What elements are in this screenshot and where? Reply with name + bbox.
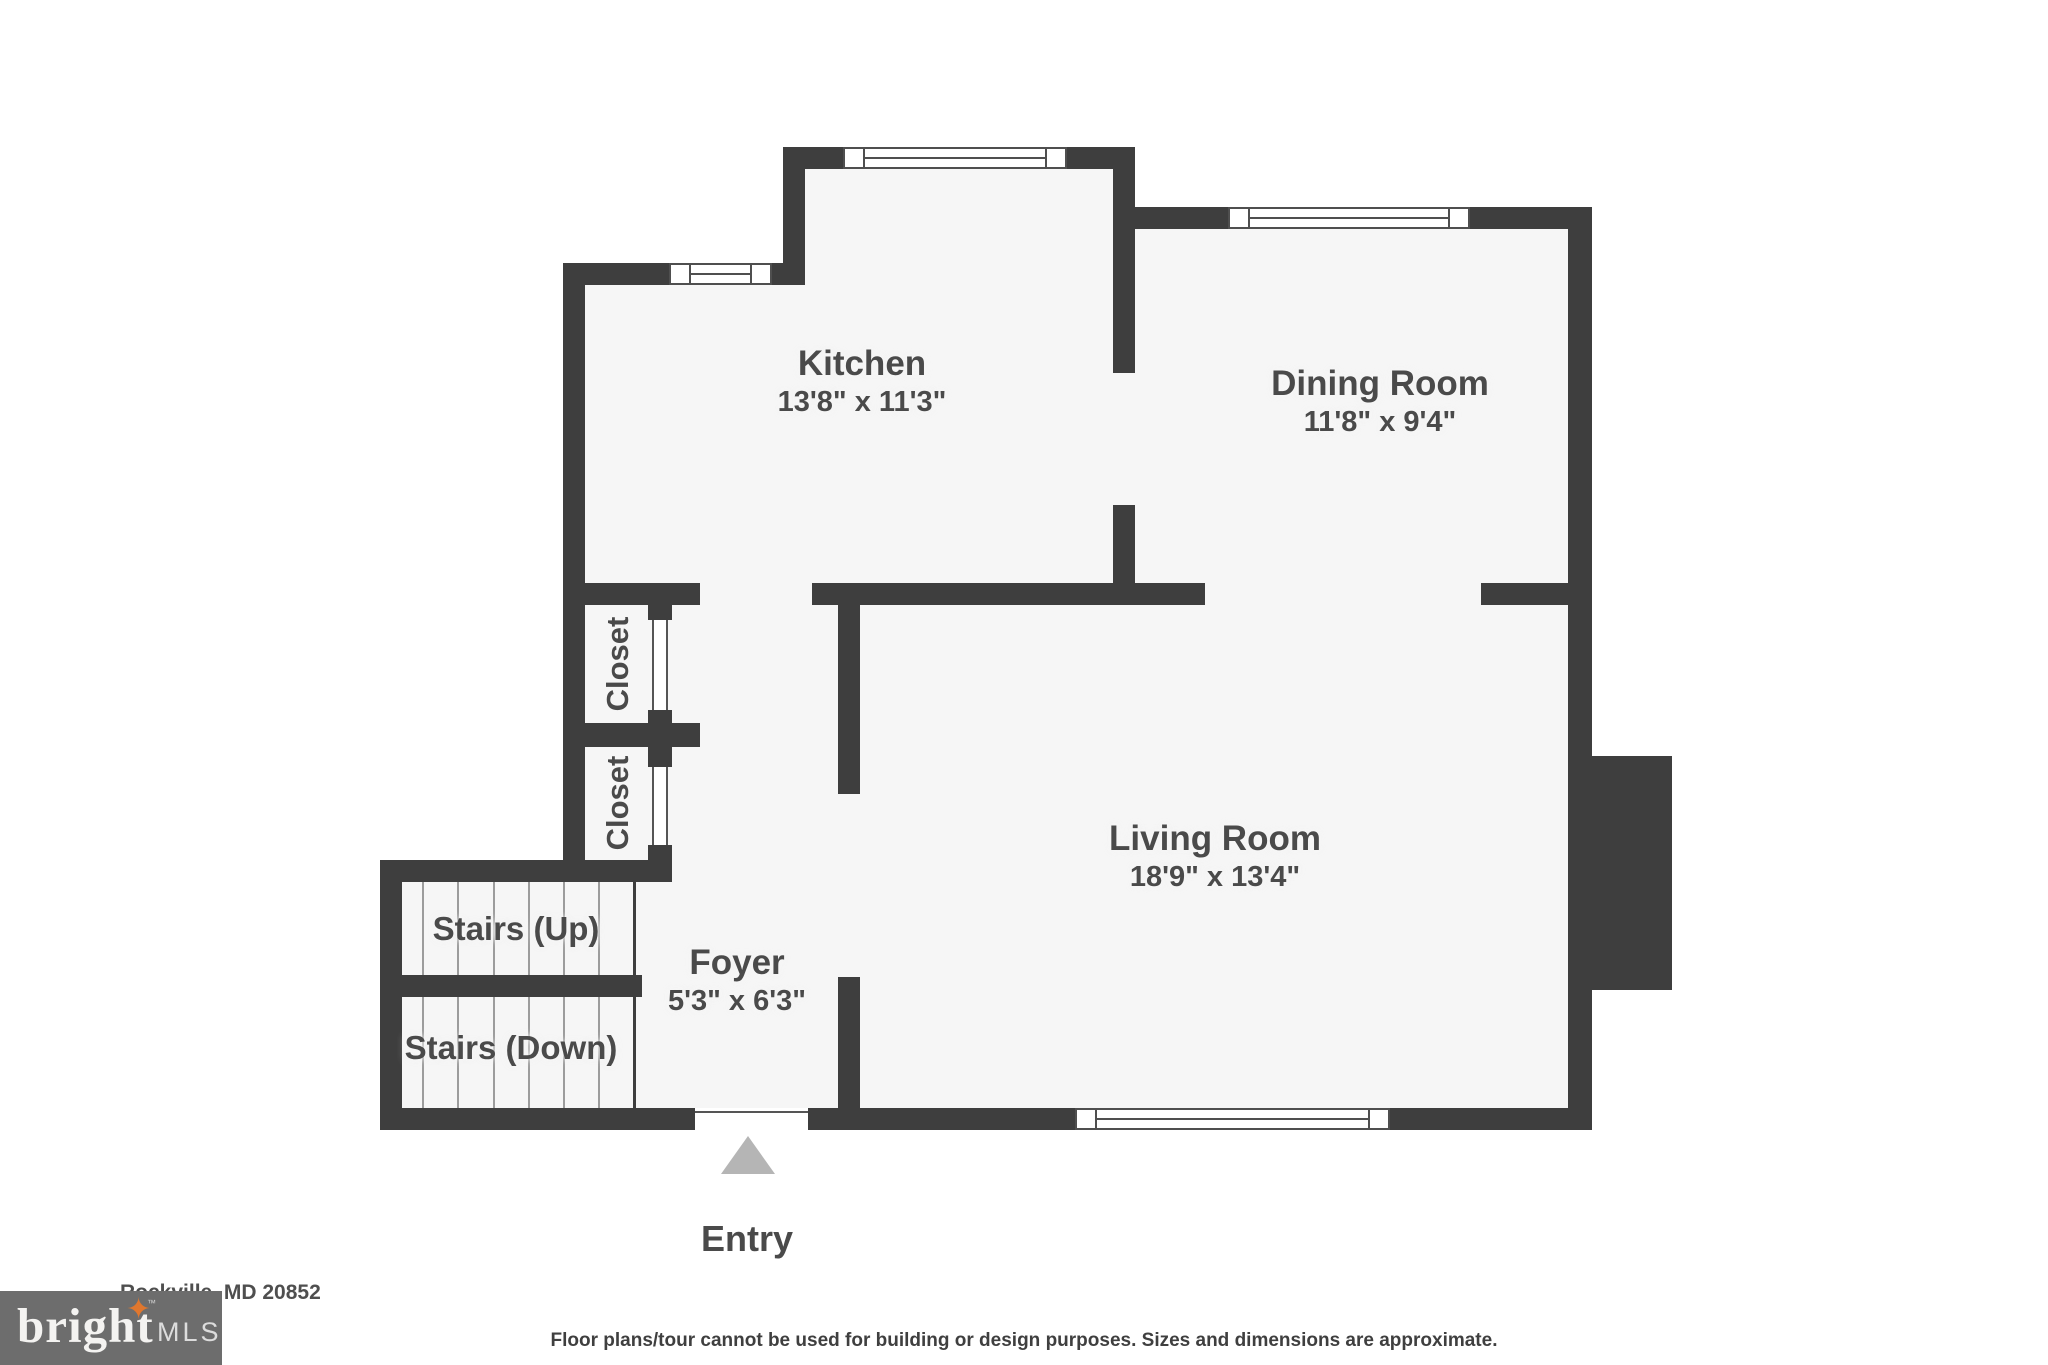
window-kitchen-top xyxy=(843,147,1067,169)
entry-door-leaf xyxy=(695,1111,808,1113)
wall-foyer-living-divider-b xyxy=(838,977,860,1130)
wall-foyer-living-divider-a xyxy=(838,583,860,794)
closet2-label: Closet xyxy=(600,756,636,851)
wall-stairs-middle xyxy=(380,975,642,997)
wall-bottom-stairs xyxy=(380,1108,695,1130)
wall-kitchen-bottom xyxy=(812,583,1205,605)
room-name-kitchen: Kitchen xyxy=(778,345,947,384)
wall-bottom-right xyxy=(1390,1108,1592,1130)
wall-kitchen-dining-divider-a xyxy=(1113,169,1135,373)
wall-stairs-top xyxy=(380,860,672,882)
floor-plan-canvas: Fireplace Kitchen 13'8" x 11'3" Dining R… xyxy=(0,0,2048,1365)
brightmls-trademark: ™ xyxy=(147,1298,156,1308)
room-label-foyer: Foyer 5'3" x 6'3" xyxy=(668,944,806,1019)
room-dims-foyer: 5'3" x 6'3" xyxy=(668,983,806,1019)
stairs-up-label: Stairs (Up) xyxy=(433,910,600,948)
entry-arrow-icon xyxy=(721,1136,775,1174)
brightmls-logo: bright ✦ ™ MLS xyxy=(0,1291,222,1365)
room-name-living: Living Room xyxy=(1109,820,1321,859)
window-living xyxy=(1075,1108,1390,1130)
disclaimer-text: Floor plans/tour cannot be used for buil… xyxy=(551,1330,1498,1352)
wall-dining-living-stub xyxy=(1481,583,1592,605)
stairs-down-label: Stairs (Down) xyxy=(405,1029,618,1067)
closet2-door xyxy=(652,767,668,847)
room-label-living: Living Room 18'9" x 13'4" xyxy=(1109,820,1321,895)
brightmls-logo-mls: MLS xyxy=(157,1317,222,1348)
room-dims-kitchen: 13'8" x 11'3" xyxy=(778,384,947,420)
wall-closet-top xyxy=(563,583,700,605)
floor-kitchen xyxy=(585,285,1135,605)
closet1-door-post-top xyxy=(648,600,672,620)
room-label-kitchen: Kitchen 13'8" x 11'3" xyxy=(778,345,947,420)
entry-door-opening xyxy=(695,1108,808,1130)
room-name-dining: Dining Room xyxy=(1271,365,1489,404)
room-label-dining: Dining Room 11'8" x 9'4" xyxy=(1271,365,1489,440)
room-dims-dining: 11'8" x 9'4" xyxy=(1271,404,1489,440)
wall-west-exterior xyxy=(563,263,585,882)
wall-kitchen-left-b xyxy=(772,263,805,285)
wall-closet-divider xyxy=(563,723,700,747)
wall-dining-top-b xyxy=(1470,207,1592,229)
wall-east-exterior xyxy=(1568,207,1592,1130)
floor-kitchen-bumpout xyxy=(805,169,1113,289)
closet1-door xyxy=(652,620,668,712)
floor-living-foyer xyxy=(585,605,1568,1112)
fireplace: Fireplace xyxy=(1585,756,1672,990)
window-dining xyxy=(1228,207,1470,229)
closet1-door-post-bottom xyxy=(648,710,672,728)
window-kitchen-left xyxy=(669,263,772,285)
entry-label: Entry xyxy=(701,1218,793,1260)
closet1-label: Closet xyxy=(600,617,636,712)
closet2-door-post-top xyxy=(648,747,672,767)
stair-tread-line xyxy=(422,882,424,975)
closet2-door-post-bottom xyxy=(648,845,672,863)
room-dims-living: 18'9" x 13'4" xyxy=(1109,859,1321,895)
room-name-foyer: Foyer xyxy=(668,944,806,983)
